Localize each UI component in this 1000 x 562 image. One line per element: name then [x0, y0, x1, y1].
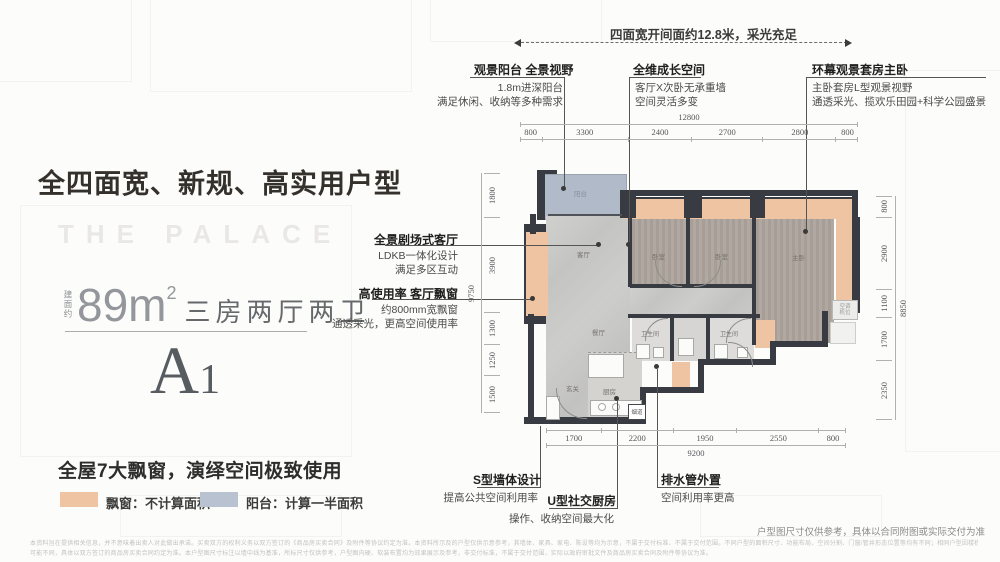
page: 全四面宽、新规、高实用户型 THE PALACE 建面约 89m2 三房两厅两卫… — [0, 0, 1000, 562]
wall-segment — [822, 311, 828, 345]
callout-line: 通透采光，更高空间使用率 — [306, 317, 458, 331]
background-lineart — [150, 0, 412, 92]
wall-segment — [698, 362, 704, 392]
callout-kitchen-body: 操作、收纳空间最大化 — [468, 512, 614, 526]
ac-label: 空调机位 — [839, 304, 852, 316]
room-label-living: 客厅 — [577, 249, 590, 259]
wall-segment — [750, 192, 765, 218]
wall-segment — [686, 217, 690, 287]
arrow-left-icon — [514, 39, 521, 47]
background-lineart — [905, 70, 1000, 452]
ruler-bottom: 1700 2200 1950 2550 800 9200 — [546, 428, 846, 458]
area-exponent: 2 — [166, 283, 176, 303]
legend-balcony-swatch — [200, 492, 238, 507]
dim-cell: 1300 — [484, 312, 500, 344]
dim-overall-right-wrap: 8850 — [898, 196, 908, 420]
dim-value: 1700 — [879, 331, 889, 348]
width-note: 四面宽开间面约12.8米，采光充足 — [610, 24, 797, 43]
ruler-right: 800 2900 1100 1700 2350 — [876, 196, 892, 420]
ruler-tick — [520, 137, 542, 142]
callout-drain-title: 排水管外置 — [661, 471, 721, 488]
dim-segments-bottom: 1700 2200 1950 2550 800 — [546, 433, 846, 443]
ruler-line — [546, 428, 846, 433]
background-lineart — [430, 0, 602, 42]
room-label-entry: 玄关 — [566, 383, 579, 393]
wall-segment — [524, 224, 546, 232]
background-lineart — [0, 0, 132, 82]
callout-baywindow-body: 约800mm宽飘窗 通透采光，更高空间使用率 — [306, 303, 458, 331]
plan-disclaimer-note: 户型图尺寸仅供参考，具体以合同附图或实际交付为准 — [640, 524, 985, 538]
dim-overall-right: 8850 — [898, 300, 908, 317]
ac-platform: 空调机位 — [832, 300, 858, 320]
wall-segment — [628, 314, 760, 318]
room-label-bath1: 卫生间 — [641, 329, 659, 338]
wall-segment — [622, 190, 858, 196]
callout-line: 1.8m进深阳台 — [415, 81, 563, 95]
dim-overall-bottom: 9200 — [546, 448, 846, 458]
callout-underline — [629, 77, 701, 78]
room-label-master: 主卧 — [792, 252, 805, 262]
wall-segment — [537, 170, 557, 174]
callout-living-body: LDKB一体化设计 满足多区互动 — [306, 249, 458, 277]
dim-value: 1700 — [546, 433, 601, 443]
kitchen-sink-icon — [612, 403, 620, 411]
disclaimer-line-2: 可能不同，具体以双方签订的商品房买卖合同约定为准。本户型图尺寸标注以墙中线为基准… — [30, 548, 978, 557]
ruler-tick — [601, 428, 672, 433]
flue-box: 烟道 — [628, 404, 646, 420]
legend-bay-swatch — [60, 492, 98, 507]
dim-value: 2550 — [737, 433, 820, 443]
callout-balcony-body: 1.8m进深阳台 满足休闲、收纳等多种需求 — [415, 81, 563, 109]
wall-segment — [640, 387, 704, 393]
ruler-line — [520, 137, 858, 142]
callout-swall-title: S型墙体设计 — [467, 471, 541, 488]
callout-growth-body: 客厅X次卧无承重墙 空间灵活多变 — [635, 81, 765, 109]
callout-underline — [470, 77, 565, 78]
room-label-kitchen: 厨房 — [603, 386, 616, 396]
callout-line: 空间利用率更高 — [661, 491, 735, 505]
ruler-tick — [546, 443, 846, 448]
kitchen-sink-icon — [598, 403, 606, 411]
wall-segment — [537, 170, 545, 220]
wall-segment — [684, 192, 702, 218]
ac-platform-2 — [830, 322, 856, 344]
dim-cell: 1700 — [876, 317, 892, 360]
sink-fixture — [653, 347, 664, 358]
callout-line: 主卧套房L型观景视野 — [812, 81, 997, 95]
legend-balcony-label: 阳台：计算一半面积 — [246, 493, 363, 512]
room-label-bedroom1: 卧室 — [652, 251, 665, 261]
wall-segment — [752, 217, 756, 287]
callout-line: LDKB一体化设计 — [306, 249, 458, 263]
dim-overall-left-wrap: 9750 — [466, 173, 476, 413]
sliding-door — [548, 214, 622, 216]
callout-line: 客厅X次卧无承重墙 — [635, 81, 765, 95]
callout-line: 满足休闲、收纳等多种需求 — [415, 95, 563, 109]
room-label-bath2: 卫生间 — [720, 329, 738, 338]
wall-segment — [670, 318, 674, 361]
callout-master-body: 主卧套房L型观景视野 通透采光、揽欢乐田园+科学公园盛景 — [812, 81, 997, 109]
ruler-tick — [520, 122, 858, 127]
callout-growth-title: 全维成长空间 — [633, 61, 705, 78]
ruler-line — [481, 173, 482, 413]
dim-value: 1300 — [487, 320, 497, 337]
leader-dot — [803, 229, 808, 234]
arrow-right-icon — [845, 39, 852, 47]
unit-number: 1 — [199, 357, 220, 403]
leader-dot — [561, 186, 566, 191]
dim-cell: 3900 — [484, 217, 500, 312]
dim-value: 3300 — [541, 127, 628, 137]
dim-value: 2350 — [879, 382, 889, 399]
dim-value: 800 — [837, 127, 858, 137]
callout-line: 操作、收纳空间最大化 — [468, 512, 614, 526]
dim-value: 800 — [520, 127, 541, 137]
callout-line: 满足多区互动 — [306, 263, 458, 277]
dim-value: 1100 — [879, 295, 889, 312]
feature-title: 全屋7大飘窗，演绎空间极致使用 — [58, 456, 342, 483]
room-label-dining: 餐厅 — [592, 327, 605, 337]
callout-underline — [806, 77, 986, 78]
dim-cell: 800 — [876, 196, 892, 217]
wall-segment — [752, 287, 756, 345]
toilet-fixture — [636, 344, 650, 359]
dim-value: 800 — [879, 200, 889, 213]
page-title: 全四面宽、新规、高实用户型 — [38, 162, 402, 201]
leader-line — [806, 77, 807, 232]
ruler-tick — [542, 137, 628, 142]
ruler-line — [895, 196, 896, 420]
ruler-line — [520, 122, 858, 127]
dim-value: 2700 — [692, 127, 763, 137]
callout-line: 通透采光、揽欢乐田园+科学公园盛景 — [812, 95, 997, 109]
area-prefix-label: 建面约 — [62, 290, 74, 326]
callout-line: 提高公共空间利用率 — [392, 491, 538, 505]
dim-value: 1800 — [487, 187, 497, 204]
dim-value: 2400 — [628, 127, 691, 137]
disclaimer-line-1: 本资料旨在提供相关信息，并不意味着出卖人对此做出承诺。买卖双方的权利义务以双方签… — [30, 538, 978, 547]
dim-value: 2900 — [879, 245, 889, 262]
ruler-tick — [628, 137, 691, 142]
callout-drain-body: 空间利用率更高 — [661, 491, 735, 505]
dim-cell: 1800 — [484, 173, 500, 217]
dim-cell: 2900 — [876, 217, 892, 289]
width-arrow-line — [521, 42, 847, 43]
dim-overall-left: 9750 — [466, 285, 476, 302]
unit-letter: A — [150, 332, 199, 408]
leader-dot — [626, 242, 631, 247]
dim-cell: 1100 — [876, 289, 892, 317]
wall-segment — [770, 341, 828, 347]
kitchen-worktop — [588, 354, 624, 378]
leader-dot — [596, 242, 601, 247]
drain-bay — [672, 362, 690, 388]
room-label-bedroom2: 卧室 — [715, 251, 728, 261]
dim-value: 3900 — [487, 257, 497, 274]
room-label-balcony: 阳台 — [574, 188, 587, 198]
ruler-left: 1800 3900 1300 1250 1500 — [484, 173, 500, 413]
callout-swall-body: 提高公共空间利用率 — [392, 491, 538, 505]
unit-name: A1 — [150, 337, 220, 404]
brand-watermark: THE PALACE — [58, 219, 342, 250]
dim-value: 2800 — [763, 127, 837, 137]
callout-line: 空间灵活多变 — [635, 95, 765, 109]
area-value: 89m2 — [77, 284, 177, 326]
ruler-tick — [673, 428, 736, 433]
leader-line — [372, 299, 533, 300]
dim-cell: 2350 — [876, 360, 892, 420]
bay-window-top — [622, 197, 858, 219]
ruler-line — [546, 443, 846, 448]
leader-dot — [530, 296, 535, 301]
wall-segment — [630, 284, 756, 288]
callout-master-title: 环幕观景套房主卧 — [812, 61, 908, 78]
wall-segment — [528, 314, 534, 422]
washer-fixture — [678, 338, 694, 356]
ruler-tick — [818, 428, 846, 433]
leader-line — [629, 77, 630, 245]
dim-cell: 1500 — [484, 375, 500, 413]
wall-segment — [852, 190, 858, 315]
dim-overall-top: 12800 — [520, 112, 858, 122]
dim-value: 1250 — [487, 352, 497, 369]
callout-line: 约800mm宽飘窗 — [306, 303, 458, 317]
flue-label: 烟道 — [631, 408, 642, 416]
callout-kitchen-title: U型社交厨房 — [541, 492, 616, 509]
ruler-top: 12800 800 3300 2400 2700 2800 800 — [520, 112, 858, 142]
ruler-tick — [691, 137, 762, 142]
dim-segments-top: 800 3300 2400 2700 2800 800 — [520, 127, 858, 137]
dim-value: 2200 — [601, 433, 673, 443]
ruler-tick — [762, 137, 835, 142]
dim-cell: 1250 — [484, 344, 500, 375]
wall-segment — [706, 318, 710, 361]
dim-value: 1950 — [673, 433, 737, 443]
legend-bay-label: 飘窗：不计算面积 — [106, 493, 210, 512]
ruler-tick — [835, 137, 858, 142]
dim-value: 1500 — [487, 386, 497, 403]
ruler-tick — [546, 428, 601, 433]
ruler-tick — [736, 428, 818, 433]
dim-value: 800 — [820, 433, 846, 443]
toilet-fixture — [714, 344, 728, 359]
callout-balcony-title: 观景阳台 全景视野 — [474, 61, 573, 78]
